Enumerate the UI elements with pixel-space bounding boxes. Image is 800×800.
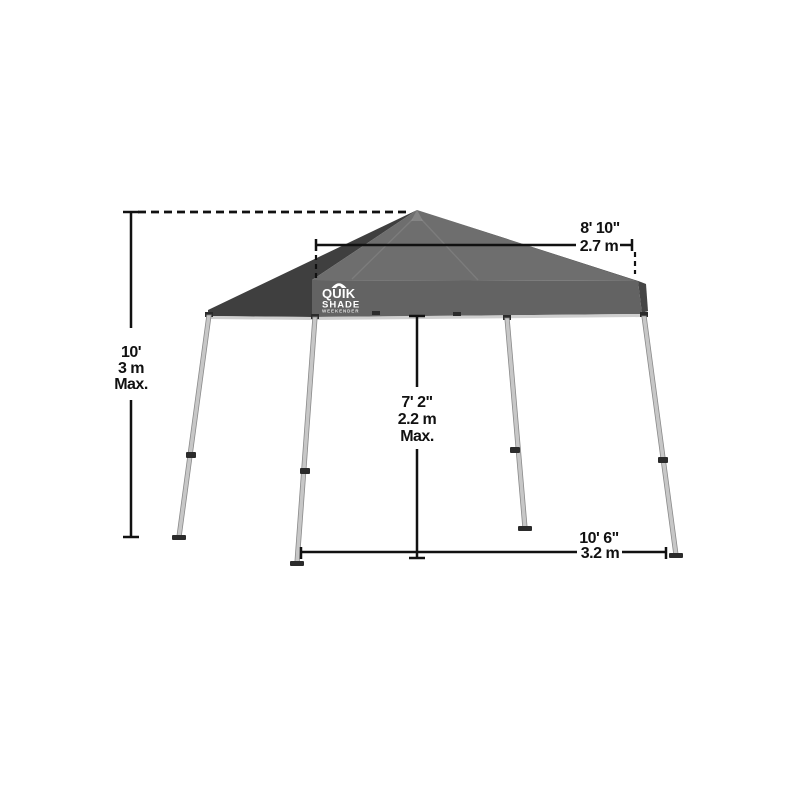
valance-front [312, 280, 642, 317]
leg-foot [172, 535, 186, 540]
valance-clip [453, 312, 461, 316]
clearance-qualifier-label: Max. [400, 428, 434, 445]
brand-logo: QUIK SHADE WEEKENDER [322, 283, 360, 313]
total-height-metric-label: 3 m [118, 360, 144, 377]
leg-back-right [505, 318, 527, 528]
leg-foot [290, 561, 304, 566]
canopy-width-imperial-label: 8' 10" [580, 220, 620, 237]
total-height-imperial-label: 10' [121, 344, 141, 361]
leg-adjuster-knob [510, 447, 520, 453]
canopy-dimension-diagram: QUIK SHADE WEEKENDER 10' 3 m Max. 8' [0, 0, 800, 800]
leg-front-right [642, 316, 678, 555]
canopy-width-metric-label: 2.7 m [580, 238, 619, 255]
base-width-metric-label: 3.2 m [581, 545, 620, 562]
leg-adjuster-knob [300, 468, 310, 474]
valance-clip [372, 311, 380, 315]
leg-foot [518, 526, 532, 531]
total-height-qualifier-label: Max. [114, 376, 148, 393]
leg-back-left [177, 315, 211, 537]
leg-foot [669, 553, 683, 558]
leg-adjuster-knob [186, 452, 196, 458]
leg-front-left [295, 317, 317, 563]
clearance-metric-label: 2.2 m [398, 411, 437, 428]
brand-tagline: WEEKENDER [322, 309, 359, 314]
leg-adjuster-knob [658, 457, 668, 463]
clearance-imperial-label: 7' 2" [401, 394, 432, 411]
